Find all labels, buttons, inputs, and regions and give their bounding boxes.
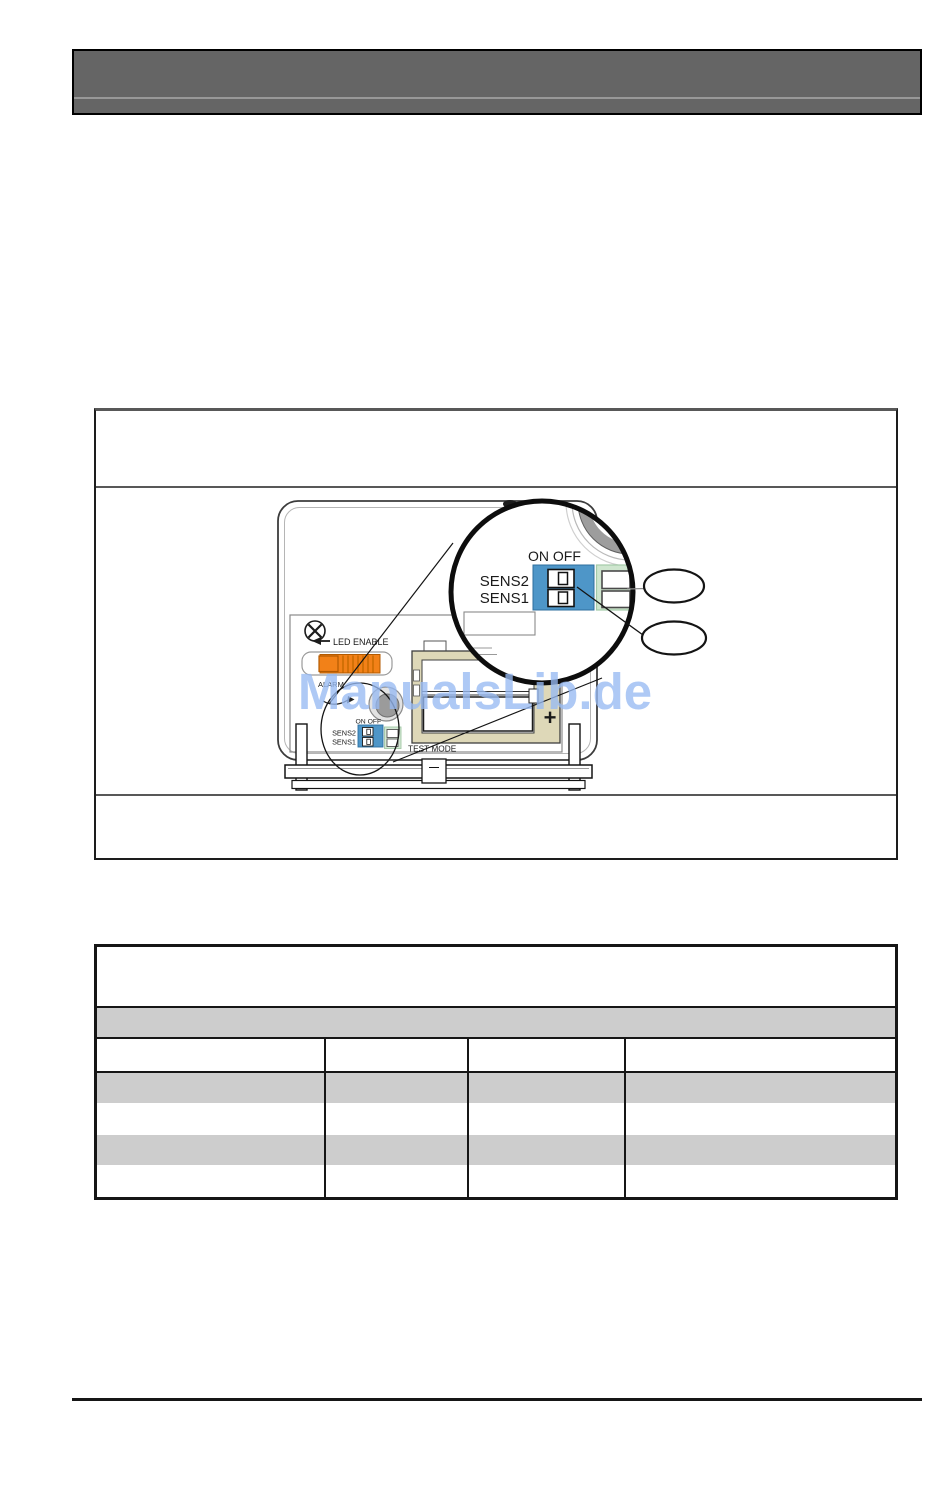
dip-on-off-label: ON OFF [356, 719, 382, 726]
table-row [97, 1103, 895, 1135]
mag-sens2-label: SENS2 [480, 573, 529, 590]
slider-ridges [343, 656, 373, 673]
table-cell [469, 1135, 626, 1165]
column-header [626, 1039, 895, 1071]
callout-ellipse-top [644, 570, 704, 603]
table-cell [97, 1135, 326, 1165]
column-header [326, 1039, 469, 1071]
slider-tab [319, 656, 338, 672]
dip-switch-2-actuator [367, 729, 371, 734]
alarm-label: ALARM [318, 680, 344, 689]
table-cell [469, 1073, 626, 1103]
table-band-row [97, 1006, 895, 1039]
figure-artwork: LED ENABLE ALARM [96, 488, 896, 794]
figure-caption-top [96, 411, 896, 486]
battery-frame-slot-2 [414, 685, 420, 696]
mag-dip-switch-2-actuator [559, 573, 568, 585]
table-row [97, 1073, 895, 1103]
table-cell [626, 1073, 895, 1103]
table-row [97, 1165, 895, 1197]
rail-center-tab [422, 759, 446, 783]
dip-sens2-label: SENS2 [332, 729, 356, 738]
table-cell [97, 1073, 326, 1103]
column-header [97, 1039, 326, 1071]
dip-off-box-2 [387, 730, 398, 738]
figure-box: LED ENABLE ALARM [94, 408, 898, 860]
dip-switch-1-actuator [367, 739, 371, 744]
manual-page: LED ENABLE ALARM [0, 0, 950, 1489]
mag-on-off-label: ON OFF [528, 548, 581, 564]
test-button-inner [376, 694, 399, 717]
table-cell [97, 1103, 326, 1135]
figure-caption-bottom [96, 796, 896, 858]
battery-plus-label: + [544, 705, 557, 730]
table-cell [469, 1165, 626, 1197]
mag-sens1-label: SENS1 [480, 590, 529, 607]
column-header [469, 1039, 626, 1071]
table-row [97, 1135, 895, 1165]
mag-off-box-1 [602, 591, 630, 608]
table-cell [626, 1165, 895, 1197]
test-mode-label: TEST MODE [408, 744, 457, 754]
battery-latch [424, 641, 446, 651]
title-bar-highlight-line [74, 97, 920, 99]
table-column-header-row [97, 1039, 895, 1073]
table-cell [626, 1135, 895, 1165]
table-cell [326, 1135, 469, 1165]
table-title-block [97, 947, 895, 1006]
mag-dip-switch-1-actuator [559, 592, 568, 604]
battery-cell [424, 697, 533, 731]
mag-off-box-2 [602, 571, 630, 589]
callout-line-top [627, 589, 645, 590]
battery-terminal [529, 689, 538, 703]
screw-icon [305, 621, 325, 641]
page-title-bar [72, 49, 922, 115]
table-cell [326, 1103, 469, 1135]
table-cell [626, 1103, 895, 1135]
led-slider-switch [302, 652, 392, 675]
settings-table [94, 944, 898, 1200]
table-cell [326, 1073, 469, 1103]
callout-ellipse-bottom [642, 622, 706, 655]
table-cell [469, 1103, 626, 1135]
footer-rule [72, 1398, 922, 1401]
table-cell [97, 1165, 326, 1197]
battery-frame-slot-1 [414, 670, 420, 681]
dip-sens1-label: SENS1 [332, 738, 356, 747]
table-cell [326, 1165, 469, 1197]
device-diagram-svg: LED ENABLE ALARM [96, 488, 900, 794]
